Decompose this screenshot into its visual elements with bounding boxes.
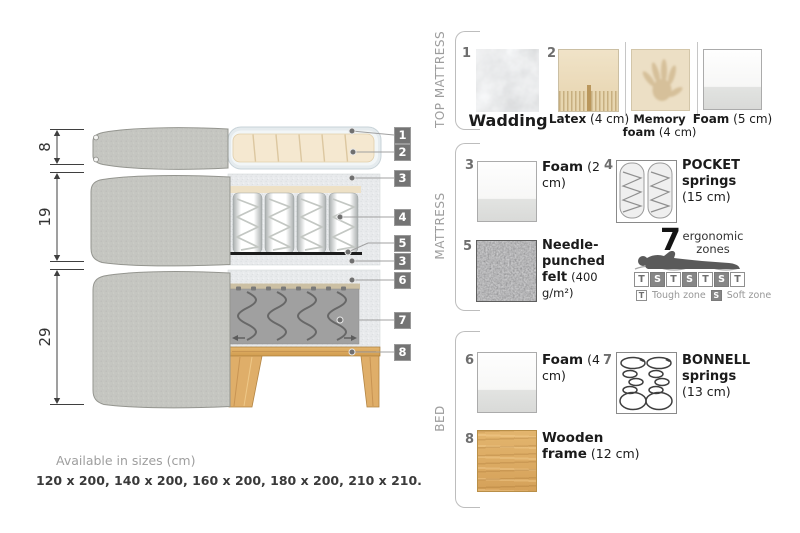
item-number-felt: 5 [463, 239, 472, 254]
foam2-image [477, 161, 537, 222]
latex-notch [587, 85, 591, 111]
wooden-frame-caption: Wooden frame (12 cm) [542, 431, 642, 462]
bonnell-springs-size: (13 cm) [682, 384, 731, 399]
handprint-icon [641, 59, 684, 101]
section-label-bed: BED [433, 331, 448, 506]
foam5-name: Foam [693, 112, 730, 126]
sizes-title: Available in sizes (cm) [56, 453, 195, 468]
item-number-wadding: 1 [462, 46, 471, 61]
item-number-foam4: 6 [465, 353, 474, 368]
latex-name: Latex [549, 112, 586, 126]
item-number-foam2: 3 [465, 158, 474, 173]
callout-4: 4 [394, 209, 411, 226]
zone-box-tough: T [634, 272, 649, 287]
bed-construction-infographic: 8 19 29 1 2 3 4 5 3 6 7 8 TOP MATTRESS 1… [0, 0, 800, 533]
bonnell-springs-image [616, 352, 677, 414]
zone-box-soft: S [650, 272, 665, 287]
callout-7: 7 [394, 312, 411, 329]
callout-1: 1 [394, 127, 411, 144]
bonnell-springs-name: BONNELL springs [682, 353, 750, 384]
latex-image [558, 49, 619, 112]
callout-8: 8 [394, 344, 411, 361]
zone-box-tough: T [730, 272, 745, 287]
zone-legend: T Tough zone S Soft zone [636, 290, 771, 301]
zone-row: T S T S T S T [634, 272, 745, 287]
foam2-name: Foam [542, 159, 583, 175]
pocket-springs-image [616, 160, 677, 223]
zone-box-soft: S [714, 272, 729, 287]
soft-zone-key: S [711, 290, 722, 301]
zone-box-tough: T [698, 272, 713, 287]
memory-foam-image [631, 49, 690, 111]
tough-zone-key: T [636, 290, 647, 301]
callout-2: 2 [394, 144, 411, 161]
pocket-springs-size: (15 cm) [682, 189, 731, 204]
wadding-image [476, 49, 539, 112]
foam5-size: (5 cm) [733, 112, 772, 126]
bonnell-spring-drawing [620, 358, 672, 410]
item-number-latex: 2 [547, 46, 556, 61]
callout-3-bottom: 3 [394, 253, 411, 270]
dimension-mattress: 19 [37, 203, 53, 231]
zone-box-tough: T [666, 272, 681, 287]
bonnell-springs-caption: BONNELL springs (13 cm) [682, 353, 748, 399]
wooden-frame-size: (12 cm) [591, 446, 640, 461]
divider-latex-memory [625, 42, 626, 116]
foam4-caption: Foam (4 cm) [542, 353, 602, 383]
dimension-top-mattress: 8 [37, 133, 53, 161]
foam4-image [477, 352, 537, 413]
zone-box-soft: S [682, 272, 697, 287]
tough-zone-label: Tough zone [652, 290, 706, 301]
pocket-springs-caption: POCKET springs (15 cm) [682, 158, 744, 204]
wooden-frame-image [477, 430, 537, 492]
foam5-image [703, 49, 762, 110]
callout-3-top: 3 [394, 170, 411, 187]
foam4-name: Foam [542, 352, 583, 368]
needle-felt-image [476, 240, 537, 302]
foam5-caption: Foam (5 cm) [686, 113, 779, 127]
ergonomic-line1: ergonomic [681, 230, 745, 243]
item-number-wood: 8 [465, 432, 474, 447]
item-number-bonnell: 7 [603, 353, 612, 368]
memory-foam-size: (4 cm) [659, 125, 696, 139]
pocket-spring-pouches [620, 163, 672, 218]
dimension-bed: 29 [37, 323, 53, 351]
soft-zone-label: Soft zone [727, 290, 771, 301]
wadding-caption: Wadding [462, 112, 554, 130]
wadding-name: Wadding [468, 111, 547, 130]
callout-6: 6 [394, 272, 411, 289]
item-number-pocket: 4 [604, 158, 613, 173]
divider-memory-foam [697, 42, 698, 116]
sleeping-person-icon [634, 250, 746, 272]
pocket-springs-name: POCKET springs [682, 158, 740, 189]
foam2-caption: Foam (2 cm) [542, 160, 602, 190]
callout-5: 5 [394, 235, 411, 252]
needle-felt-caption: Needle-punched felt (400 g/m²) [542, 238, 610, 300]
sizes-list: 120 x 200, 140 x 200, 160 x 200, 180 x 2… [36, 473, 422, 488]
section-label-top-mattress: TOP MATTRESS [433, 31, 448, 128]
section-label-mattress: MATTRESS [433, 143, 448, 309]
